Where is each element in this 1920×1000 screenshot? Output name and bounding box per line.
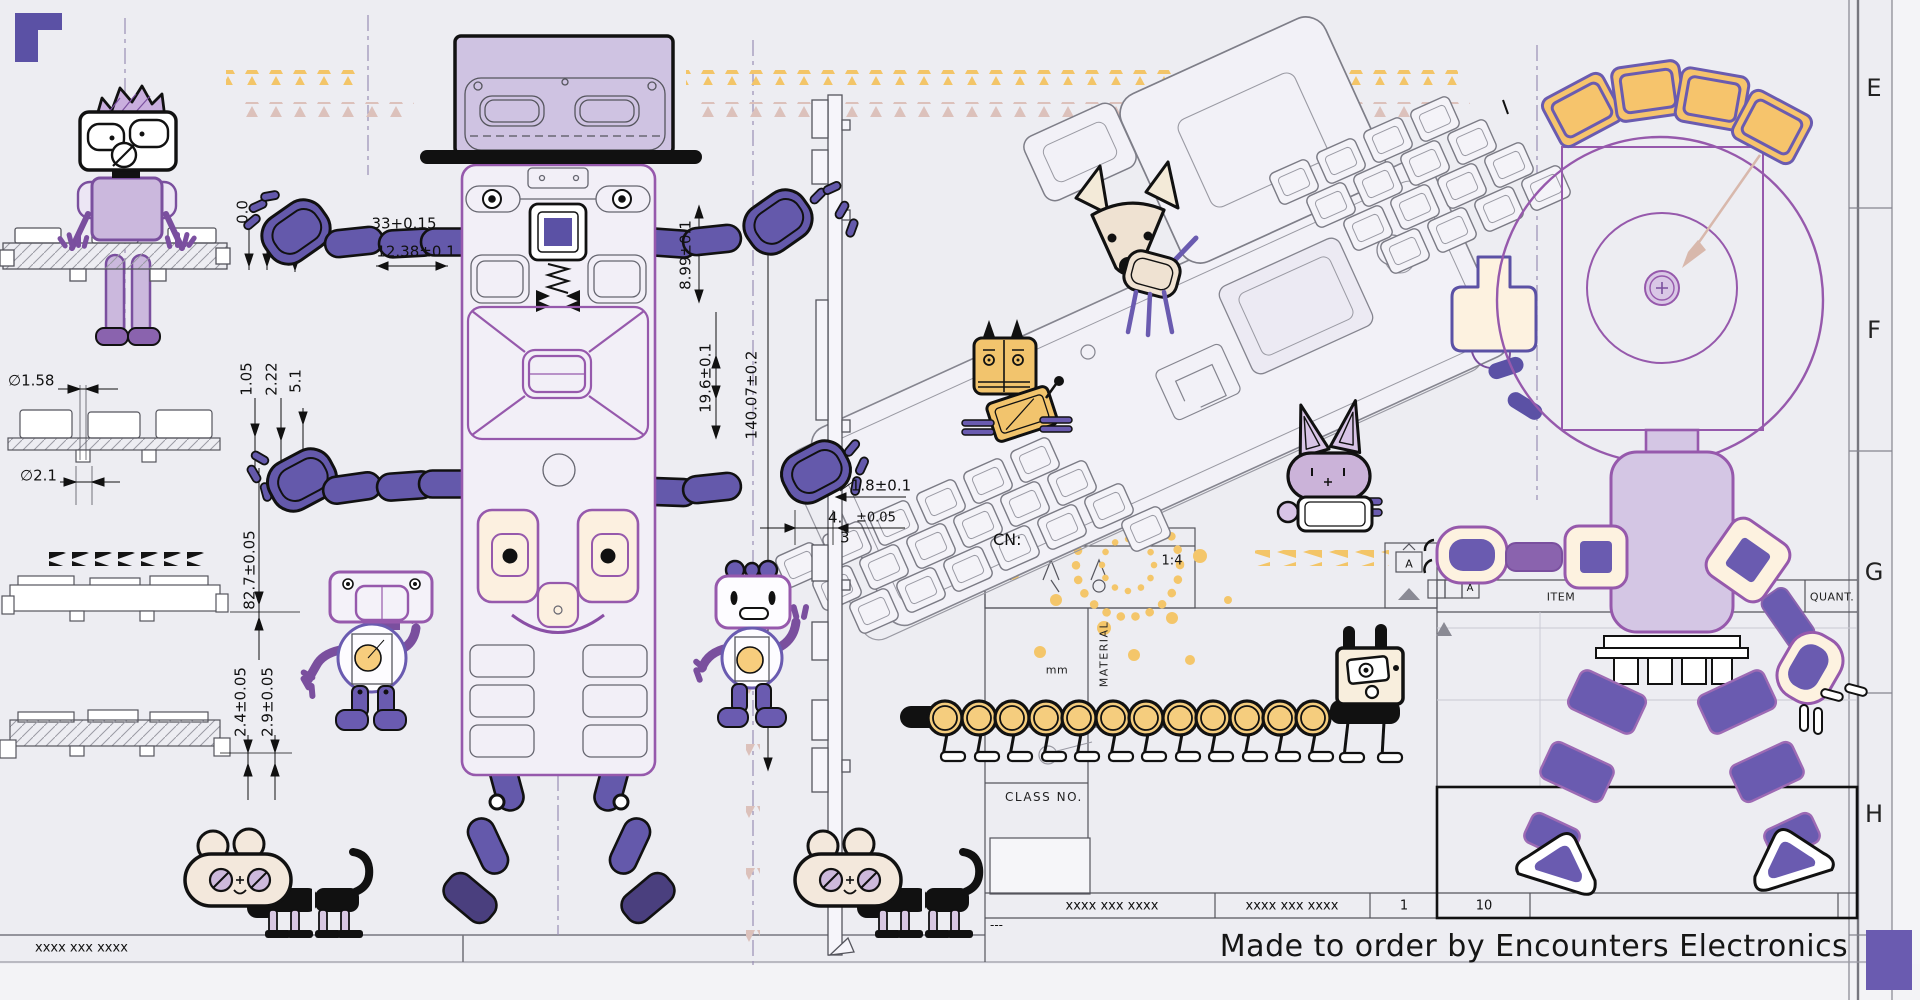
- dim-pitch: 1.8±0.1: [851, 479, 911, 494]
- zone-letter-f: F: [1867, 318, 1881, 342]
- dim-stack-3: 5.1: [289, 369, 304, 393]
- units-label: mm: [1046, 665, 1068, 676]
- quant-label: QUANT.: [1810, 592, 1854, 603]
- dim-gap-int: 4.: [828, 511, 842, 526]
- class-no-label: CLASS NO.: [1005, 791, 1083, 803]
- zone-letter-g: G: [1865, 560, 1884, 584]
- part-number-2: xxxx xxx xxxx: [1246, 900, 1339, 913]
- blueprint-canvas: 0.0 33+0.15 12.38±0.1 8.99±0.1 19.6±0.1 …: [0, 0, 1920, 1000]
- dim-gap-tol: ±0.05: [856, 512, 896, 525]
- revision-dashes: ---: [990, 919, 1003, 931]
- dim-stack-1: 1.05: [240, 362, 255, 395]
- zone-letter-h: H: [1865, 802, 1883, 826]
- dim-dia-large: ∅2.1: [20, 469, 57, 484]
- dim-width-top: 33+0.15: [371, 217, 436, 232]
- detail-a-label: A: [1405, 559, 1413, 570]
- dim-height-total: 140.07±0.2: [745, 351, 760, 440]
- part-number-1: xxxx xxx xxxx: [1066, 900, 1159, 913]
- dim-height-mid: 19.6±0.1: [699, 343, 714, 413]
- dim-length-side: 82.7±0.05: [243, 530, 258, 609]
- dim-width-top2: 12.38±0.1: [376, 245, 455, 260]
- scale-value: 1:4: [1162, 555, 1183, 568]
- dim-dia-small: ∅1.58: [8, 374, 54, 389]
- dim-thick-1: 2.4±0.05: [234, 667, 249, 737]
- cn-label: CN:: [993, 532, 1022, 548]
- dim-thick-2: 2.9±0.05: [261, 667, 276, 737]
- zone-letter-e: E: [1866, 76, 1881, 100]
- drawing-artwork: [0, 0, 1920, 1000]
- dim-stack-2: 2.22: [265, 362, 280, 395]
- dim-gap-frac: 3: [840, 531, 850, 546]
- material-label: MATERIAL: [1099, 621, 1110, 687]
- sheet-number: 1: [1400, 900, 1408, 913]
- datum-a-label: A: [1467, 584, 1474, 594]
- dim-zero: 0.0: [236, 200, 251, 224]
- footer-left-text: xxxx xxx xxxx: [35, 942, 128, 955]
- tagline: Made to order by Encounters Electronics: [1220, 932, 1848, 962]
- quantity-value: 10: [1476, 900, 1493, 913]
- dim-height-right: 8.99±0.1: [679, 220, 694, 290]
- item-label: ITEM: [1547, 592, 1575, 603]
